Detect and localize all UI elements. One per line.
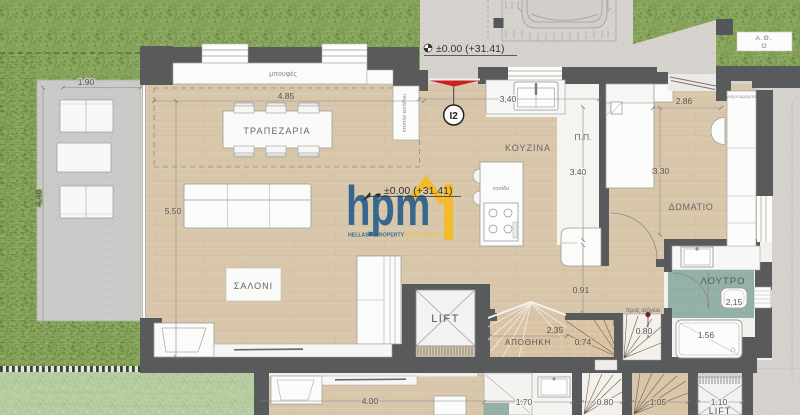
- svg-text:4.48: 4.48: [33, 189, 43, 206]
- svg-text:0.80: 0.80: [597, 397, 614, 407]
- svg-text:2.35: 2.35: [547, 325, 564, 335]
- svg-text:Ι2: Ι2: [450, 111, 459, 122]
- svg-text:5.50: 5.50: [165, 206, 182, 216]
- svg-text:1.05: 1.05: [650, 397, 667, 407]
- svg-text:4.85: 4.85: [278, 91, 295, 101]
- svg-text:1.70: 1.70: [516, 397, 533, 407]
- svg-text:MANAGEMENT: MANAGEMENT: [405, 233, 444, 239]
- svg-text:LIFT: LIFT: [431, 313, 460, 325]
- svg-text:0.74: 0.74: [575, 337, 592, 347]
- svg-text:0.80: 0.80: [636, 326, 653, 336]
- svg-text:4.00: 4.00: [362, 396, 379, 406]
- svg-text:1.90: 1.90: [78, 77, 95, 87]
- svg-text:γκαρνταρόμπα: γκαρνταρόμπα: [726, 93, 756, 99]
- svg-text:έπιπλο εισόδου: έπιπλο εισόδου: [401, 94, 408, 132]
- svg-text:Ι2: Ι2: [761, 43, 767, 50]
- svg-text:Π.Π.: Π.Π.: [575, 132, 592, 142]
- svg-text:LIFT: LIFT: [709, 406, 732, 415]
- svg-text:1.56: 1.56: [698, 330, 715, 340]
- svg-text:ΔΩΜΑΤΙΟ: ΔΩΜΑΤΙΟ: [669, 202, 714, 212]
- svg-text:2.86: 2.86: [676, 96, 693, 106]
- svg-text:PROPERTY: PROPERTY: [376, 233, 405, 239]
- svg-text:1.10: 1.10: [711, 397, 728, 407]
- svg-text:3.40: 3.40: [570, 167, 587, 177]
- svg-text:3,40: 3,40: [500, 94, 517, 104]
- svg-text:3.30: 3.30: [653, 166, 670, 176]
- svg-text:ΛΟΥΤΡΟ: ΛΟΥΤΡΟ: [700, 276, 745, 287]
- svg-text:2,15: 2,15: [726, 297, 743, 307]
- svg-text:ΤΡΑΠΕΖΑΡΙΑ: ΤΡΑΠΕΖΑΡΙΑ: [243, 126, 310, 136]
- svg-text:ΑΠΟΘΗΚΗ: ΑΠΟΘΗΚΗ: [505, 338, 551, 347]
- svg-text:0.91: 0.91: [573, 285, 590, 295]
- svg-text:νησίδα: νησίδα: [493, 186, 510, 192]
- svg-text:±0.00 (+31.41): ±0.00 (+31.41): [436, 43, 505, 55]
- svg-text:προς ισόγειο: προς ισόγειο: [626, 307, 661, 314]
- svg-text:Α.Θ.: Α.Θ.: [755, 35, 772, 42]
- svg-text:ΣΑΛΟΝΙ: ΣΑΛΟΝΙ: [234, 281, 273, 291]
- svg-text:HELLAS: HELLAS: [348, 233, 369, 239]
- svg-text:μπουφές: μπουφές: [269, 70, 297, 78]
- svg-text:±0.00 (+31.41): ±0.00 (+31.41): [384, 185, 453, 197]
- svg-text:ΚΟΥΖΙΝΑ: ΚΟΥΖΙΝΑ: [505, 143, 551, 153]
